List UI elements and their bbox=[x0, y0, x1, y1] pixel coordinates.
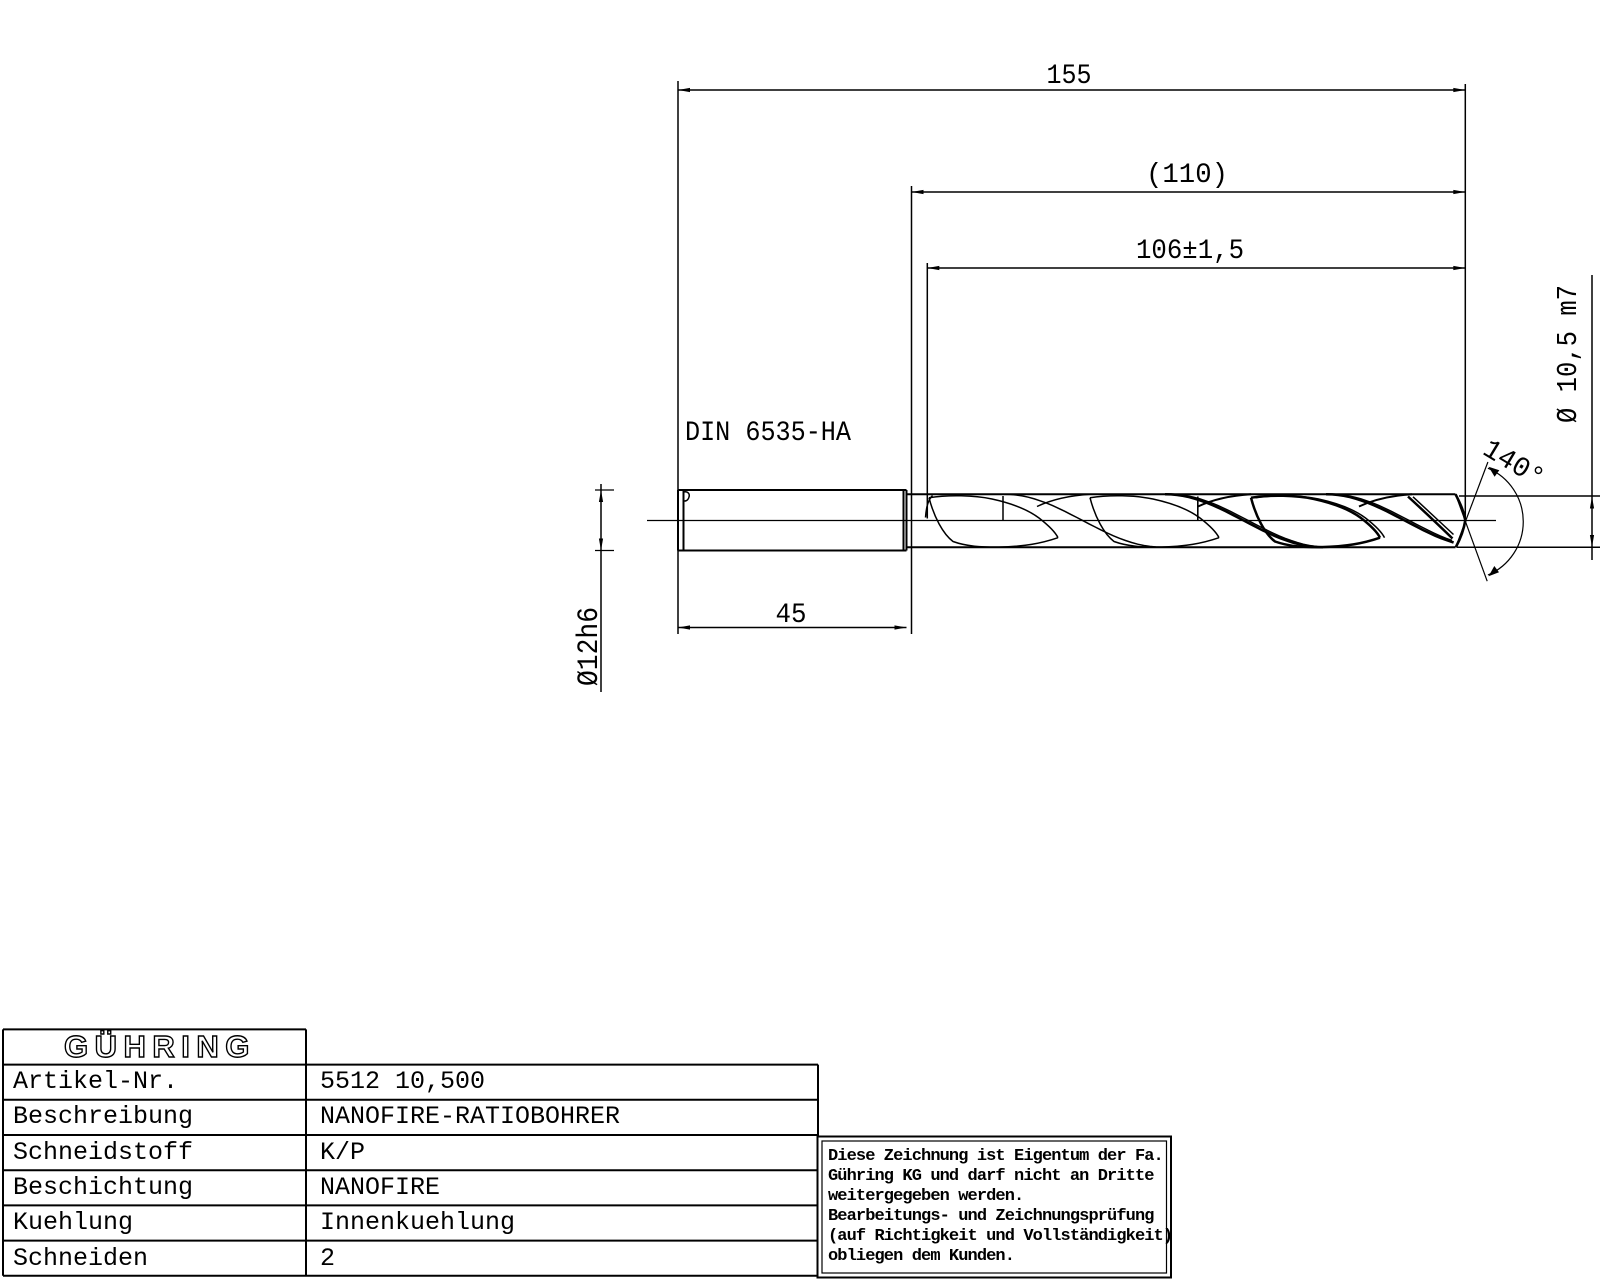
svg-text:Bearbeitungs- und Zeichnungspr: Bearbeitungs- und Zeichnungsprüfung bbox=[828, 1207, 1154, 1226]
svg-text:5512 10,500: 5512 10,500 bbox=[320, 1067, 485, 1096]
svg-text:106±1,5: 106±1,5 bbox=[1136, 236, 1244, 267]
svg-text:DIN 6535-HA: DIN 6535-HA bbox=[685, 418, 851, 449]
svg-text:2: 2 bbox=[320, 1244, 335, 1273]
svg-text:Innenkuehlung: Innenkuehlung bbox=[320, 1208, 515, 1237]
svg-text:Ø 10,5 m7: Ø 10,5 m7 bbox=[1552, 285, 1585, 423]
svg-text:Schneiden: Schneiden bbox=[13, 1244, 148, 1273]
svg-text:Kuehlung: Kuehlung bbox=[13, 1208, 133, 1237]
svg-text:155: 155 bbox=[1047, 61, 1092, 92]
svg-text:NANOFIRE-RATIOBOHRER: NANOFIRE-RATIOBOHRER bbox=[320, 1102, 620, 1131]
svg-text:Schneidstoff: Schneidstoff bbox=[13, 1138, 193, 1167]
svg-text:GÜHRING: GÜHRING bbox=[64, 1029, 256, 1064]
svg-text:Beschichtung: Beschichtung bbox=[13, 1173, 193, 1202]
svg-text:NANOFIRE: NANOFIRE bbox=[320, 1173, 440, 1202]
svg-text:Diese Zeichnung ist Eigentum d: Diese Zeichnung ist Eigentum der Fa. bbox=[828, 1147, 1163, 1166]
svg-text:Beschreibung: Beschreibung bbox=[13, 1102, 193, 1131]
svg-text:Gühring KG und darf nicht an D: Gühring KG und darf nicht an Dritte bbox=[828, 1167, 1154, 1186]
svg-text:(110): (110) bbox=[1146, 160, 1228, 191]
svg-text:45: 45 bbox=[776, 600, 807, 631]
svg-text:K/P: K/P bbox=[320, 1138, 365, 1167]
svg-text:obliegen dem Kunden.: obliegen dem Kunden. bbox=[828, 1247, 1014, 1266]
svg-text:Artikel-Nr.: Artikel-Nr. bbox=[13, 1067, 178, 1096]
svg-text:weitergegeben werden.: weitergegeben werden. bbox=[828, 1187, 1023, 1206]
svg-text:(auf Richtigkeit und Vollständ: (auf Richtigkeit und Vollständigkeit) bbox=[828, 1227, 1172, 1246]
svg-text:Ø12h6: Ø12h6 bbox=[573, 607, 607, 686]
